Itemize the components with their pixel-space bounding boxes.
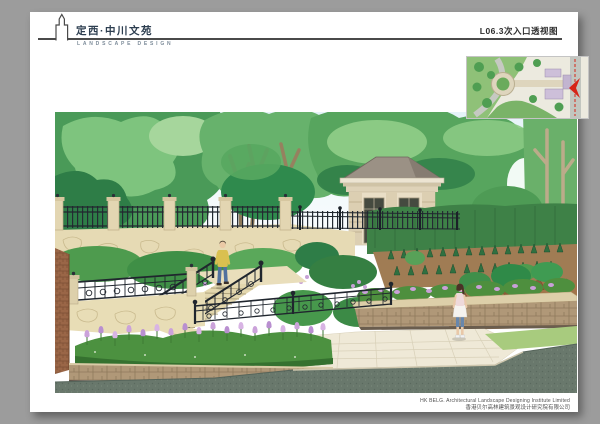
stage: 定西·中川文苑 LANDSCAPE DESIGN L06.3次入口透视图 [0, 0, 600, 424]
paper: 定西·中川文苑 LANDSCAPE DESIGN L06.3次入口透视图 [30, 12, 578, 412]
tower-outline-icon [52, 12, 76, 41]
page-subtitle: LANDSCAPE DESIGN [77, 41, 173, 47]
rendering-area [55, 112, 577, 393]
header-rule [38, 38, 562, 40]
company-name-en: HK BELG. Architectural Landscape Designi… [420, 398, 570, 405]
keymap-inset [467, 57, 588, 118]
footer: HK BELG. Architectural Landscape Designi… [420, 398, 570, 412]
perspective-rendering [55, 112, 577, 393]
sheet-label: L06.3次入口透视图 [480, 25, 558, 37]
company-name-cn: 香港贝尔高林建筑景观设计研究院有限公司 [420, 405, 570, 412]
site-plan [467, 57, 588, 118]
left-brick-wall [55, 248, 69, 374]
page-title: 定西·中川文苑 [76, 23, 153, 38]
